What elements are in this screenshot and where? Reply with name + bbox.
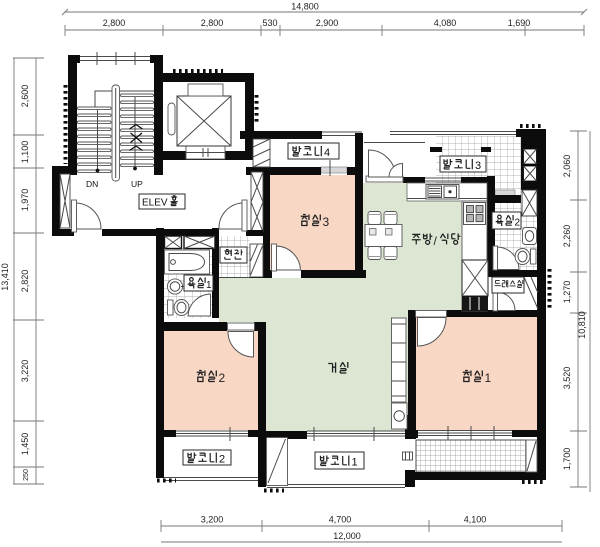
svg-text:2,260: 2,260 (562, 225, 572, 248)
svg-text:2,820: 2,820 (20, 270, 30, 293)
svg-text:1,100: 1,100 (20, 141, 30, 164)
svg-text:DN: DN (86, 179, 98, 189)
svg-text:3,220: 3,220 (20, 360, 30, 383)
svg-text:1: 1 (352, 457, 358, 469)
svg-text:1: 1 (206, 280, 212, 291)
svg-text:4,700: 4,700 (329, 515, 352, 525)
svg-text:1,700: 1,700 (562, 448, 572, 471)
svg-text:1: 1 (485, 371, 492, 385)
svg-text:14,800: 14,800 (291, 2, 319, 12)
svg-text:2: 2 (515, 218, 521, 229)
svg-text:ELEV: ELEV (142, 198, 168, 209)
svg-text:1,970: 1,970 (20, 189, 30, 212)
svg-text:4,080: 4,080 (434, 18, 457, 28)
svg-text:2,800: 2,800 (201, 18, 224, 28)
svg-text:3: 3 (475, 160, 481, 172)
svg-text:12,000: 12,000 (333, 531, 361, 541)
svg-text:4,100: 4,100 (464, 515, 487, 525)
svg-text:2,060: 2,060 (562, 155, 572, 178)
svg-text:1,270: 1,270 (562, 281, 572, 304)
svg-text:10,810: 10,810 (577, 311, 587, 339)
svg-text:530: 530 (262, 18, 277, 28)
svg-text:2: 2 (219, 454, 225, 466)
svg-text:2,800: 2,800 (103, 18, 126, 28)
svg-text:3: 3 (323, 215, 330, 229)
svg-text:2,900: 2,900 (316, 18, 339, 28)
svg-text:1,450: 1,450 (20, 433, 30, 456)
svg-text:UP: UP (131, 179, 143, 189)
svg-text:2: 2 (219, 371, 226, 385)
svg-text:2,600: 2,600 (20, 85, 30, 108)
svg-text:250: 250 (23, 469, 30, 481)
svg-text:13,410: 13,410 (0, 263, 10, 291)
svg-text:3,520: 3,520 (562, 367, 572, 390)
svg-text:3,200: 3,200 (201, 515, 224, 525)
svg-text:1,690: 1,690 (508, 18, 531, 28)
svg-text:4: 4 (324, 147, 330, 159)
